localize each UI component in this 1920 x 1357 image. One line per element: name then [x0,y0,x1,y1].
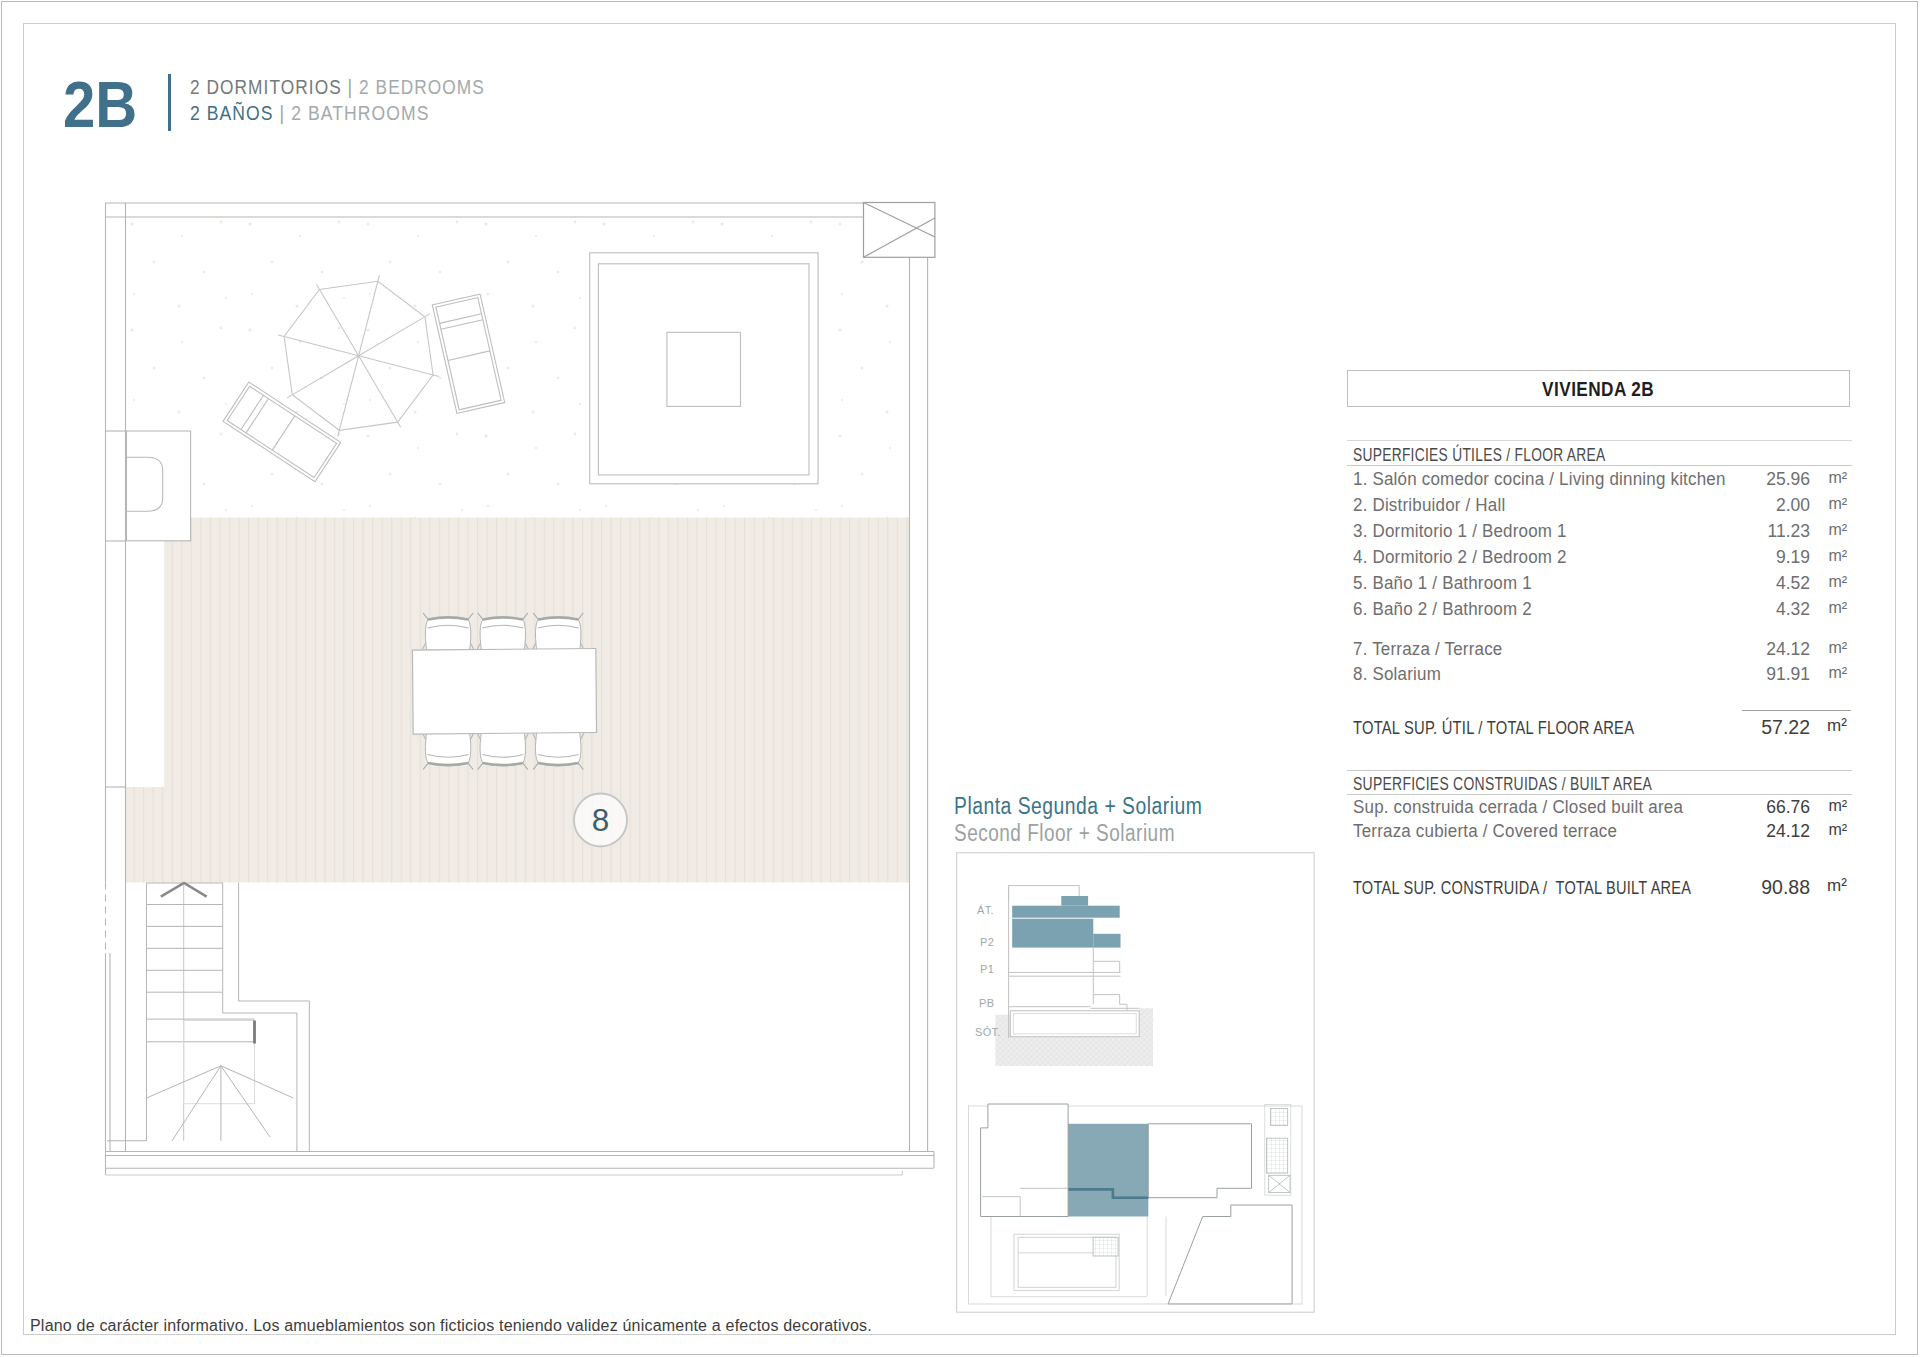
svg-text:P2: P2 [980,936,994,948]
svg-text:8: 8 [592,802,610,838]
svg-text:SÓT.: SÓT. [975,1026,1001,1038]
svg-text:PB: PB [979,997,994,1009]
svg-text:ÁT.: ÁT. [977,904,994,916]
svg-text:P1: P1 [980,963,994,975]
